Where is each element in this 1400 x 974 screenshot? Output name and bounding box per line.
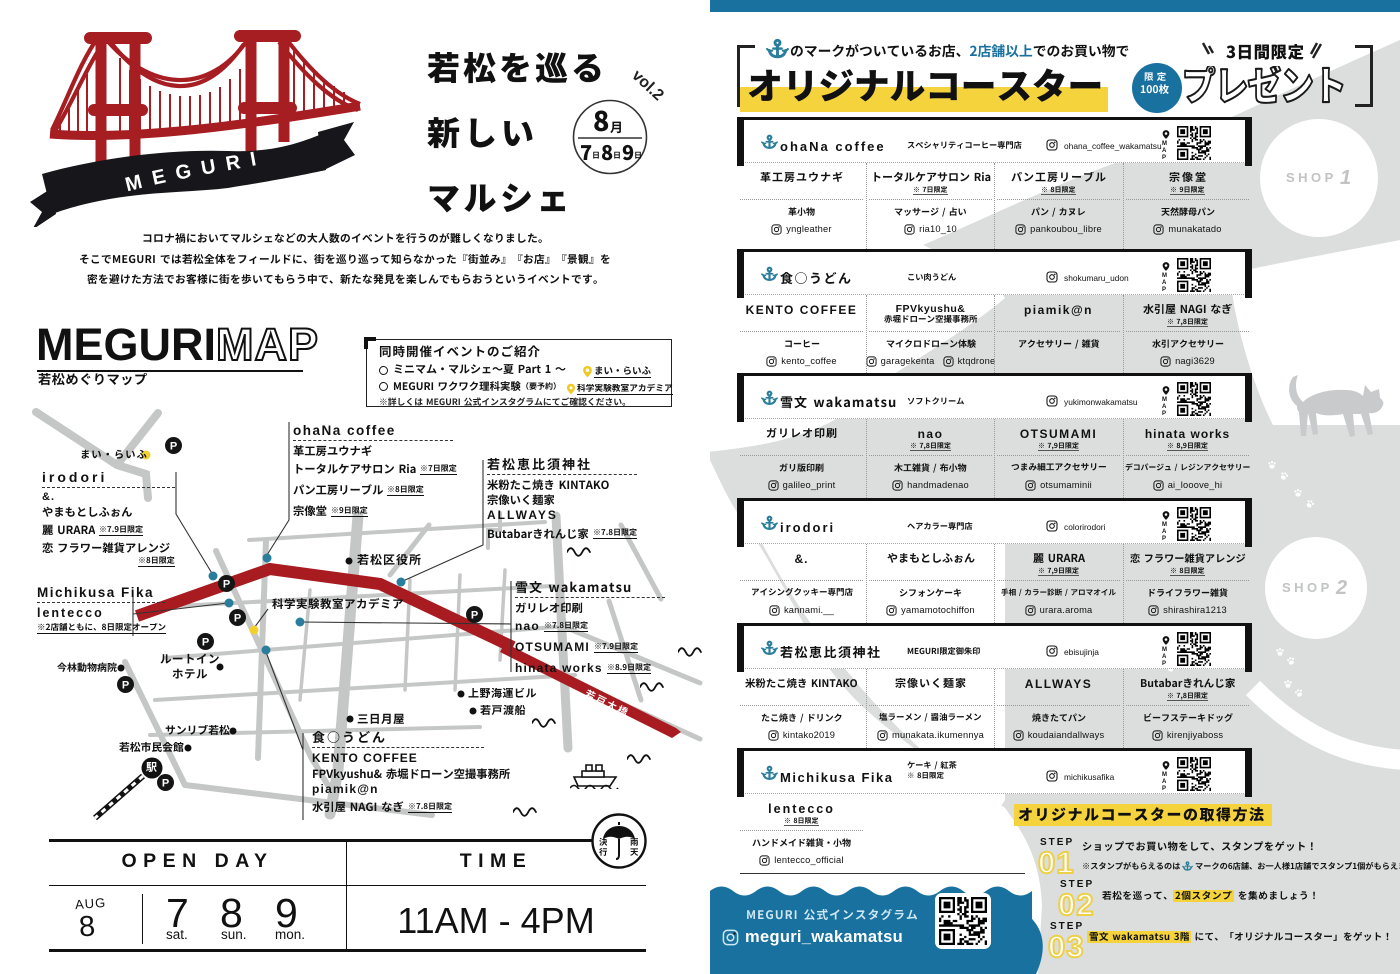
svg-text:P: P <box>121 679 128 691</box>
svg-text:P: P <box>470 609 477 621</box>
svg-text:P: P <box>201 636 208 648</box>
svg-text:SHOP: SHOP <box>1282 580 1333 595</box>
svg-text:P: P <box>169 440 176 452</box>
svg-text:SHOP: SHOP <box>1286 170 1337 185</box>
svg-text:P: P <box>233 612 240 624</box>
svg-text:2: 2 <box>1335 577 1347 599</box>
svg-text:1: 1 <box>1340 167 1351 189</box>
svg-text:P: P <box>222 578 229 590</box>
